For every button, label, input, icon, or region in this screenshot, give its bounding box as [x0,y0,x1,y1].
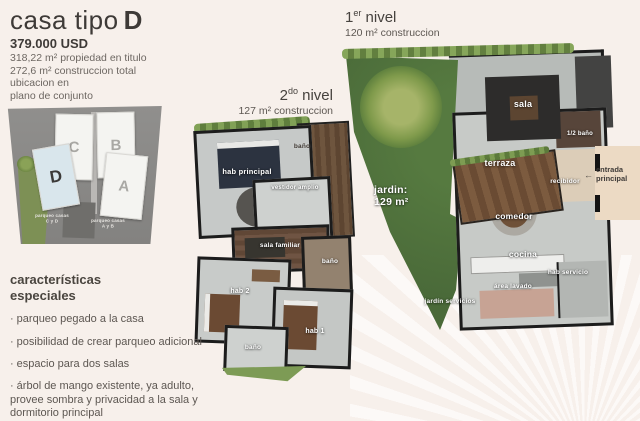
bullet-icon: · [10,380,14,392]
brochure-page: casa tipoD 379.000 USD 318,22 m² propied… [0,0,640,421]
desk-graphic [252,269,280,282]
feature-item: ·posibilidad de crear parqueo adicional [10,336,208,349]
building-d-label: D [48,166,64,188]
entrance-label-line2: principal [596,175,627,184]
feature-item: ·espacio para dos salas [10,358,208,371]
level2-title-sup: do [288,86,298,96]
room-label-hab1: hab 1 [295,328,335,336]
entrance-label: ← entrada principal [584,166,640,183]
laundry-floor [479,288,554,319]
room-label-vestidor: vestidor amplio [260,185,330,192]
parking-cd-line2: C y D [28,219,77,224]
room-label-hab-principal: hab principal [212,168,282,176]
level1-title-rest: nivel [361,9,396,26]
grass-wedge [222,366,306,382]
price: 379.000 USD [10,36,88,51]
room-label-terraza: terraza [470,159,530,169]
garden-size-label: jardin: 129 m² [374,184,426,208]
site-plan: C B A D parqueo casas C y D parqueo casa… [3,106,165,244]
room-label-jardin-servicios: jardín servicios [420,298,480,305]
bullet-icon: · [10,336,14,348]
page-title-light: casa tipo [10,5,119,35]
page-title-letter: D [124,5,143,35]
features-heading-line2: especiales [10,288,208,304]
location-caption: ubicacion en plano de conjunto [10,77,93,103]
room-label-recibidor: recibidor [543,178,587,185]
room-label-bano-bottom: baño [233,344,273,351]
room-label-hab2: hab 2 [214,288,266,296]
level1-header: 1er nivel 120 m² construccion [345,8,525,39]
location-caption-line1: ubicacion en [10,77,93,90]
building-a-label: A [118,177,131,195]
room-label-medio-bano: 1/2 baño [560,131,600,138]
special-features: características especiales ·parqueo pega… [10,272,208,421]
room-label-sala: sala [498,100,548,110]
page-title: casa tipoD [10,5,143,36]
parking-label-ab: parqueo casas A y B [84,219,133,230]
room-label-comedor: comedor [488,212,540,221]
entrance-label-text: entrada principal [596,166,627,183]
level2-title-rest: nivel [298,87,333,104]
construction-area: 272,6 m² construccion total [10,65,136,77]
wall-segment [595,195,600,212]
room-label-hab-servicio: hab servicio [543,269,593,276]
feature-item: ·parqueo pegado a la casa [10,313,208,326]
bullet-icon: · [10,313,14,325]
feature-text-4: árbol de mango existente, ya adulto, pro… [10,380,198,419]
features-heading-line1: características [10,272,208,288]
room-label-bano-top: baño [284,143,320,150]
property-area: 318,22 m² propiedad en titulo [10,52,147,64]
level2-title: 2do nivel [180,86,333,104]
building-b-label: B [110,136,121,153]
level1-subtitle: 120 m² construccion [345,27,525,39]
half-bath-floor [555,111,601,149]
feature-item: ·árbol de mango existente, ya adulto, pr… [10,380,208,420]
level1-title: 1er nivel [345,8,525,26]
building-a: A [100,152,148,220]
level2-subtitle: 127 m² construccion [180,105,333,117]
tree-icon [17,156,35,172]
feature-text-3: espacio para dos salas [17,358,130,370]
features-heading: características especiales [10,272,208,303]
garden-size-line2: 129 m² [374,196,426,208]
parking-label-cd: parqueo casas C y D [28,214,77,225]
level1-floorplan: ← entrada principal sala 1/2 baño terraz… [338,44,640,340]
parking-ab-line2: A y B [84,224,133,229]
bullet-icon: · [10,358,14,370]
level2-floorplan: baño hab principal vestidor amplio sala … [196,120,350,388]
mango-tree-icon [360,66,442,148]
room-label-area-lavado: área lavado [488,283,538,290]
feature-text-2: posibilidad de crear parqueo adicional [17,336,202,348]
room-label-sala-familiar: sala familiar [238,242,322,249]
feature-text-1: parqueo pegado a la casa [17,313,144,325]
room-label-cocina: cocina [501,250,545,259]
level2-title-num: 2 [280,87,288,104]
level2-header: 2do nivel 127 m² construccion [180,86,333,117]
location-caption-line2: plano de conjunto [10,90,93,103]
garden-size-line1: jardin: [374,184,426,196]
